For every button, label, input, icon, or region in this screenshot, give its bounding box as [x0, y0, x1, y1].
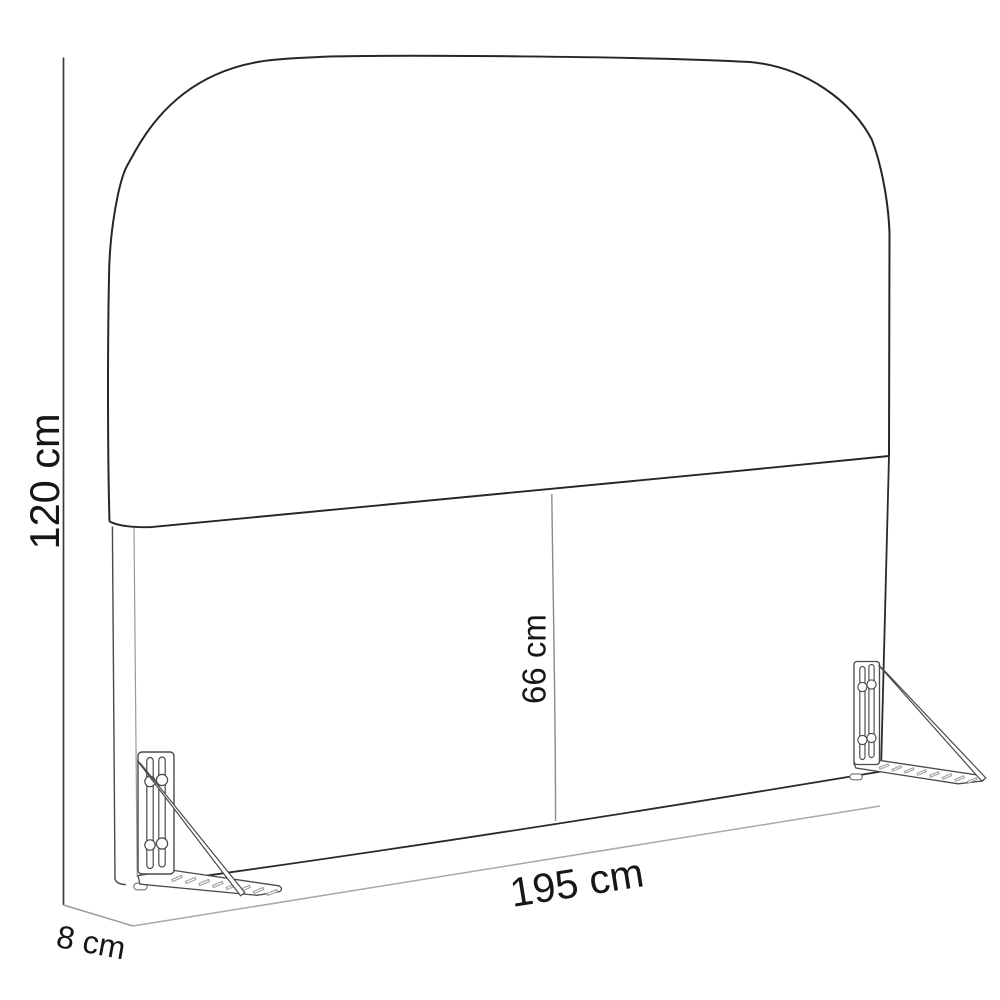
- svg-text:120 cm: 120 cm: [21, 413, 68, 549]
- svg-text:66 cm: 66 cm: [516, 614, 553, 704]
